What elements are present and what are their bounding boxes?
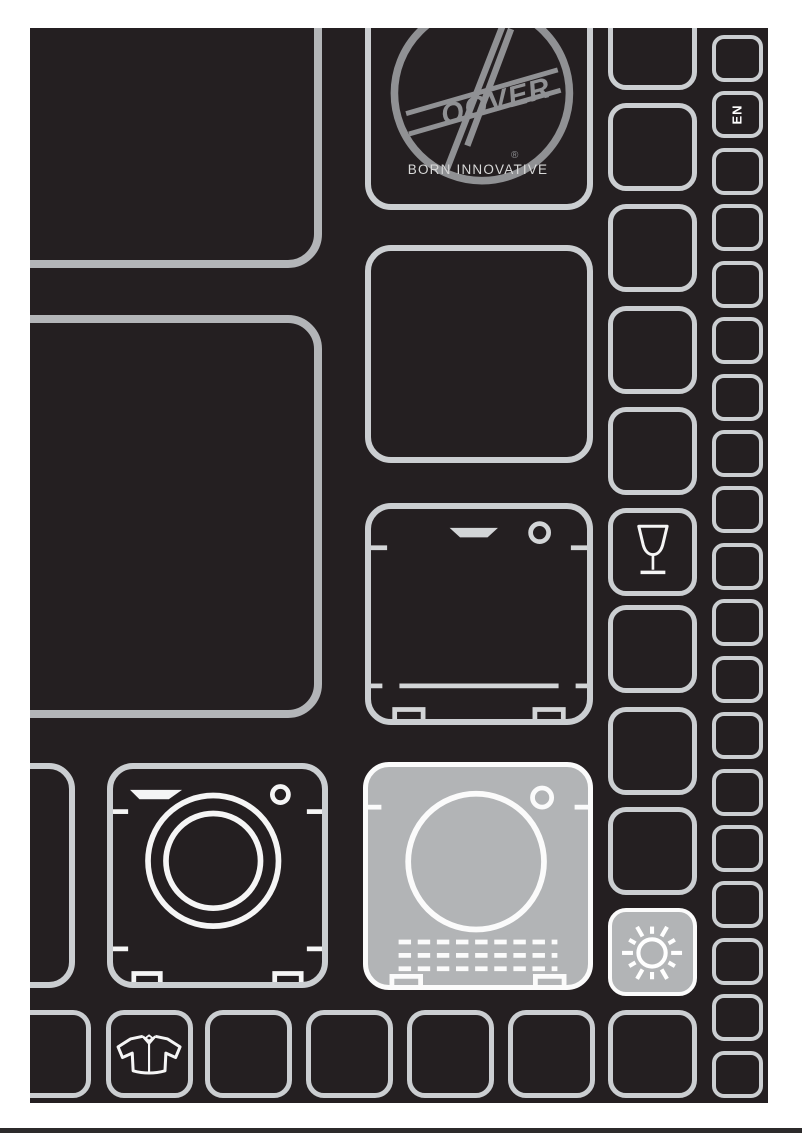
grid-tile-large [30,28,322,268]
wine-glass-tile [608,508,697,596]
grid-tile [306,1010,393,1098]
grid-tile-cropped [30,763,75,988]
grid-tile [608,1010,697,1098]
grid-tile [608,103,697,191]
grid-tile [205,1010,292,1098]
grid-tile-small [712,543,763,590]
logo-script-text: OOVER [438,72,555,132]
grid-tile [608,407,697,495]
wine-glass-icon [613,513,692,591]
grid-tile [608,306,697,394]
dishwasher-tile [365,503,593,725]
grid-tile-cropped [608,28,697,90]
grid-tile-small [712,825,763,872]
grid-tile-small [712,938,763,985]
manual-cover-page: OOVER ® BORN INNOVATIVE [0,0,802,1136]
grid-tile-large [30,315,322,718]
grid-tile-small [712,35,763,82]
tumble-dryer-icon [368,767,588,985]
washing-machine-tile [107,763,328,988]
language-tab-en: EN [712,91,763,138]
grid-tile-small [712,486,763,533]
tumble-dryer-tile-highlighted [363,762,593,990]
grid-tile [608,707,697,795]
shirt-icon [111,1015,188,1093]
grid-tile [407,1010,494,1098]
grid-tile-cropped [30,1010,91,1098]
grid-tile-small [712,881,763,928]
grid-tile-small [712,204,763,251]
grid-tile-small [712,148,763,195]
dishwasher-icon [371,509,587,719]
grid-tile-small [712,599,763,646]
grid-tile [608,807,697,895]
brand-logo-tile: OOVER ® BORN INNOVATIVE [365,28,593,210]
grid-tile-small [712,430,763,477]
grid-tile-small [712,769,763,816]
grid-tile-small [712,261,763,308]
grid-tile [608,204,697,292]
grid-tile [365,245,593,463]
sun-icon [612,912,693,992]
brand-tagline: BORN INNOVATIVE [371,162,585,177]
grid-tile-small [712,994,763,1041]
shirt-tile [106,1010,193,1098]
cover-grid-panel: OOVER ® BORN INNOVATIVE [30,28,768,1103]
grid-tile [608,605,697,693]
grid-tile-small [712,712,763,759]
hoover-logo-icon: OOVER [371,28,587,204]
registered-trademark: ® [511,150,518,161]
grid-tile-small [712,374,763,421]
grid-tile-small [712,1051,763,1098]
grid-tile-small [712,317,763,364]
sun-tile-highlighted [608,908,697,996]
grid-tile-small [712,656,763,703]
grid-tile [508,1010,595,1098]
washing-machine-icon [113,769,322,982]
footer-rule [0,1128,802,1133]
language-label: EN [731,104,744,124]
